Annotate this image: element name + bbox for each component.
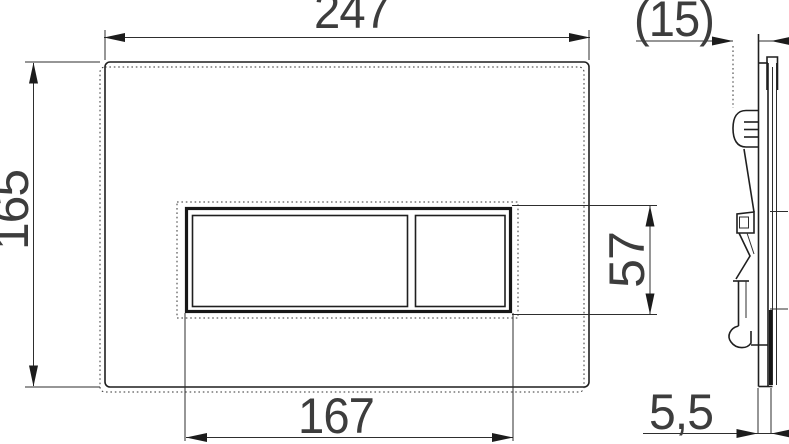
dimension-plate-width: 247: [104, 0, 590, 60]
button-small: [416, 216, 506, 307]
side-view: [729, 34, 788, 387]
arrowhead-up: [29, 63, 38, 84]
dim-plate-height-label: 165: [0, 170, 39, 250]
dimension-drawing: 247 165 57 167: [0, 0, 789, 444]
arrowhead-up: [646, 206, 655, 227]
dimension-plate-thickness: 5,5: [643, 384, 789, 440]
plate-outline: [105, 62, 589, 387]
front-view: [100, 62, 589, 392]
arrowhead-left: [772, 429, 789, 438]
dim-button-height-label: 57: [599, 232, 655, 288]
arrowhead-left: [186, 433, 207, 442]
arrowhead-right: [569, 33, 590, 42]
dim-plate-width-label: 247: [314, 0, 390, 39]
button-large: [193, 216, 408, 307]
dim-overall-depth-label: (15): [634, 0, 714, 47]
dimension-plate-height: 165: [0, 62, 100, 387]
arrowhead-left: [771, 37, 789, 46]
arrowhead-right: [712, 37, 733, 46]
dim-plate-thickness-label: 5,5: [649, 384, 713, 440]
arrowhead-right: [492, 433, 513, 442]
button-opening-hidden-outline: [177, 202, 518, 318]
dimension-overall-depth: (15): [634, 0, 789, 108]
drawing-canvas: 247 165 57 167: [0, 0, 789, 444]
dim-button-width-label: 167: [298, 388, 374, 444]
arrowhead-down: [646, 294, 655, 315]
button-frame: [187, 209, 511, 312]
spring-lever: [729, 149, 768, 348]
arrowhead-left: [104, 33, 125, 42]
dimension-button-width: 167: [185, 313, 513, 444]
arrowhead-right: [737, 429, 758, 438]
arrowhead-down: [29, 366, 38, 387]
